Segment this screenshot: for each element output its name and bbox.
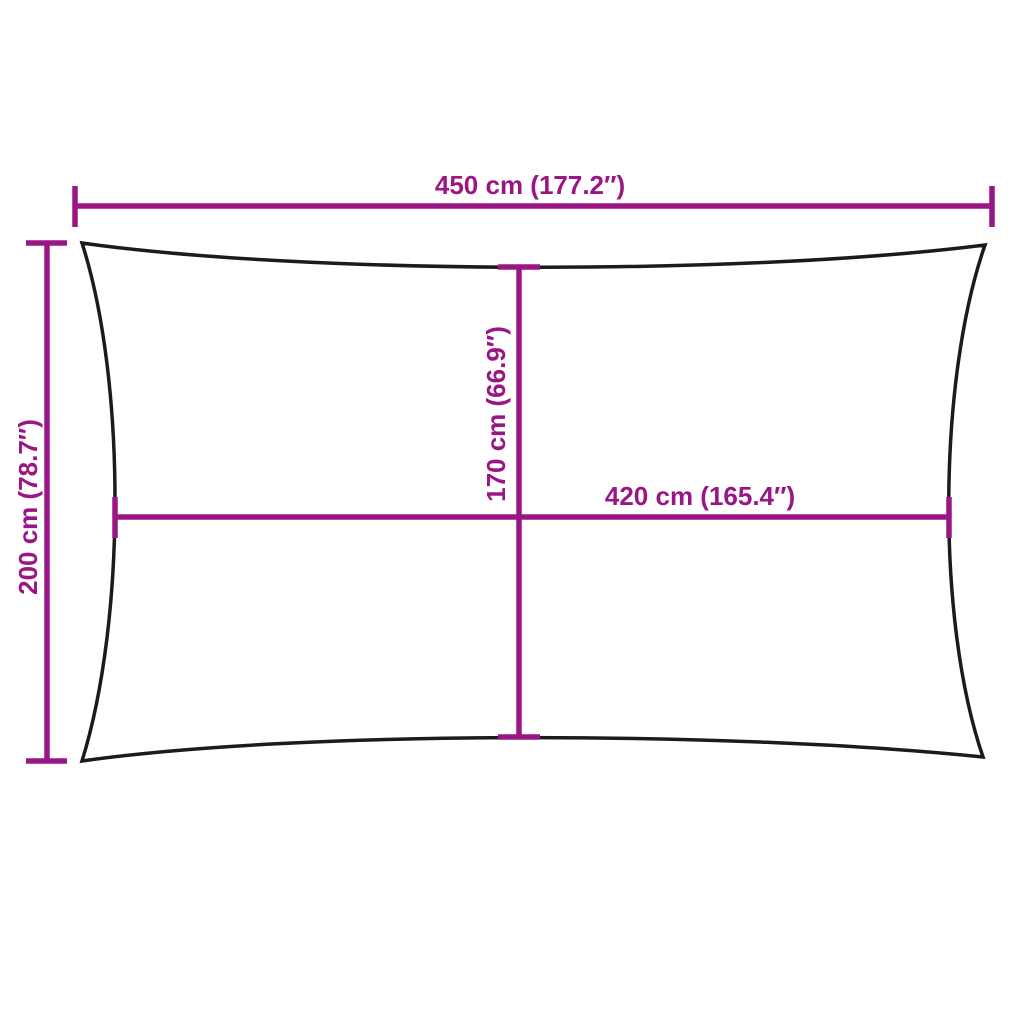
diagram-canvas: 450 cm (177.2″) 200 cm (78.7″) 170 cm (6… bbox=[0, 0, 1024, 1024]
dimension-labels: 450 cm (177.2″) 200 cm (78.7″) 170 cm (6… bbox=[13, 170, 795, 595]
inner-width-dim-label: 420 cm (165.4″) bbox=[605, 481, 795, 511]
inner-height-dim-label: 170 cm (66.9″) bbox=[481, 326, 511, 502]
dimension-diagram: 450 cm (177.2″) 200 cm (78.7″) 170 cm (6… bbox=[0, 0, 1024, 1024]
height-dim-label: 200 cm (78.7″) bbox=[13, 419, 43, 595]
width-dim-label: 450 cm (177.2″) bbox=[435, 170, 625, 200]
sail-outline bbox=[82, 243, 985, 761]
